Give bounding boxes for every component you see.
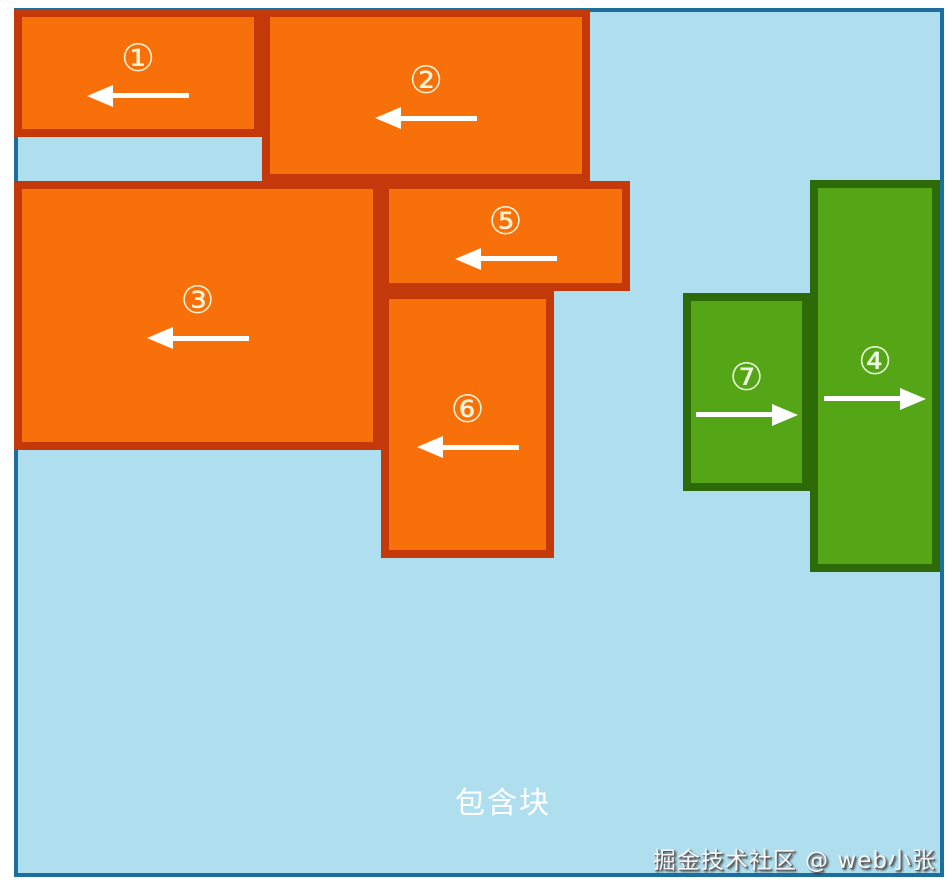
float-box-6: ⑥ [381, 291, 554, 558]
arrow-left-icon [147, 326, 249, 350]
box-6-number-label: ⑥ [450, 390, 484, 428]
box-4-number-label: ④ [858, 342, 892, 380]
float-box-1: ① [14, 9, 262, 137]
watermark-text: 掘金技术社区 @ web小张 [653, 841, 936, 875]
box-7-number-label: ⑦ [729, 358, 763, 396]
float-box-2: ② [262, 9, 590, 182]
box-1-number-label: ① [121, 39, 155, 77]
box-3-number-label: ③ [180, 281, 214, 319]
arrow-shaft [443, 445, 519, 450]
arrow-left-icon [375, 106, 477, 130]
arrow-head [417, 436, 443, 458]
arrow-head [375, 107, 401, 129]
box-2-number-label: ② [409, 61, 443, 99]
arrow-left-icon [455, 247, 557, 271]
arrow-head [87, 85, 113, 107]
arrow-shaft [113, 93, 189, 98]
arrow-shaft [173, 336, 249, 341]
arrow-head [455, 248, 481, 270]
arrow-shaft [696, 412, 772, 417]
arrow-shaft [481, 256, 557, 261]
float-box-3: ③ [14, 181, 381, 450]
containing-block-label: 包含块 [455, 778, 551, 822]
arrow-left-icon [417, 435, 519, 459]
float-box-7: ⑦ [683, 293, 810, 491]
arrow-right-icon [824, 387, 926, 411]
page: ① ② ③ ⑤ ⑥ ⑦ [0, 0, 952, 891]
float-box-5: ⑤ [381, 181, 630, 291]
arrow-head [147, 327, 173, 349]
arrow-right-icon [696, 403, 798, 427]
arrow-shaft [824, 396, 900, 401]
arrow-shaft [401, 116, 477, 121]
float-box-4: ④ [810, 180, 940, 572]
arrow-head [900, 388, 926, 410]
arrow-head [772, 404, 798, 426]
arrow-left-icon [87, 84, 189, 108]
box-5-number-label: ⑤ [488, 202, 522, 240]
